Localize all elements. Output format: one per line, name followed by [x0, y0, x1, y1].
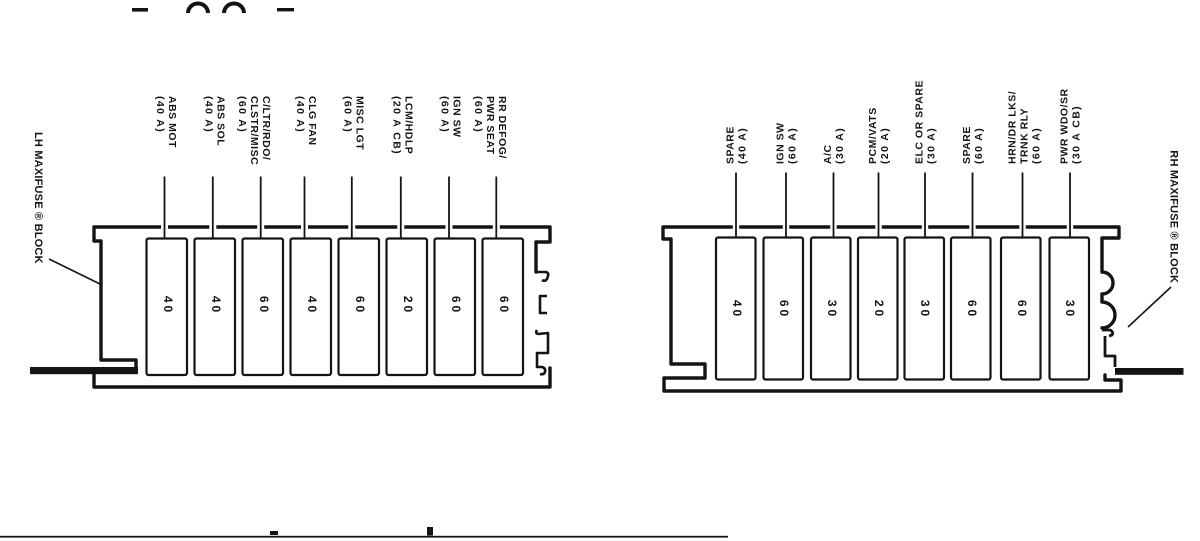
- svg-text:HRN/DR LKS/: HRN/DR LKS/: [1007, 91, 1019, 164]
- svg-text:40: 40: [305, 296, 319, 315]
- svg-text:(60 A): (60 A): [439, 96, 451, 133]
- svg-text:(60 A): (60 A): [341, 96, 353, 133]
- svg-text:(30 A CB): (30 A CB): [1071, 105, 1083, 164]
- svg-text:20: 20: [872, 300, 886, 319]
- svg-text:(40 A): (40 A): [154, 96, 166, 133]
- svg-text:SPARE: SPARE: [961, 126, 973, 164]
- svg-text:30: 30: [918, 300, 932, 319]
- svg-text:(30 A): (30 A): [926, 127, 938, 164]
- svg-text:40: 40: [730, 300, 744, 319]
- svg-text:30: 30: [825, 300, 839, 319]
- svg-text:20: 20: [401, 296, 415, 315]
- svg-text:RR DEFOG/: RR DEFOG/: [496, 96, 508, 159]
- svg-text:(40 A): (40 A): [294, 96, 306, 133]
- svg-text:60: 60: [449, 296, 463, 315]
- svg-text:SPARE: SPARE: [725, 126, 737, 164]
- svg-text:IGN SW: IGN SW: [775, 123, 787, 165]
- svg-text:ABS SOL: ABS SOL: [214, 96, 226, 146]
- svg-text:30: 30: [1063, 300, 1077, 319]
- svg-text:(40 A): (40 A): [202, 96, 214, 133]
- svg-text:60: 60: [965, 300, 979, 319]
- svg-text:PWR SEAT: PWR SEAT: [484, 96, 496, 155]
- svg-text:(60 A): (60 A): [1031, 127, 1043, 164]
- svg-text:(60 A): (60 A): [787, 127, 799, 164]
- svg-text:TRNK RLY: TRNK RLY: [1019, 108, 1031, 164]
- svg-text:MISC LGT: MISC LGT: [353, 96, 365, 150]
- svg-text:60: 60: [777, 300, 791, 319]
- svg-text:(60 A): (60 A): [236, 96, 248, 133]
- svg-text:(30 A): (30 A): [834, 127, 846, 164]
- svg-text:60: 60: [1015, 300, 1029, 319]
- svg-text:PWR WDO/SR: PWR WDO/SR: [1059, 88, 1071, 164]
- svg-text:LH MAXIFUSE ® BLOCK: LH MAXIFUSE ® BLOCK: [32, 132, 44, 264]
- svg-text:A/C: A/C: [822, 144, 834, 164]
- svg-text:ABS MOT: ABS MOT: [166, 96, 178, 148]
- svg-text:RH MAXIFUSE ® BLOCK: RH MAXIFUSE ® BLOCK: [1168, 150, 1180, 283]
- svg-text:40: 40: [161, 296, 175, 315]
- svg-text:CLG FAN: CLG FAN: [306, 96, 318, 146]
- svg-text:40: 40: [209, 296, 223, 315]
- svg-text:IGN SW: IGN SW: [451, 96, 463, 138]
- svg-text:(20 A): (20 A): [879, 127, 891, 164]
- svg-text:C/LTR/RDO/: C/LTR/RDO/: [260, 96, 272, 160]
- svg-text:60: 60: [257, 296, 271, 315]
- svg-text:PCM/VATS: PCM/VATS: [867, 107, 879, 164]
- svg-text:(60 A): (60 A): [973, 127, 985, 164]
- svg-text:60: 60: [497, 296, 511, 315]
- svg-text:(20 A CB): (20 A CB): [390, 96, 402, 155]
- svg-text:ELC OR SPARE: ELC OR SPARE: [914, 80, 926, 164]
- svg-text:60: 60: [353, 296, 367, 315]
- svg-text:CLSTR/MISC: CLSTR/MISC: [248, 96, 260, 165]
- svg-text:LCM/HDLP: LCM/HDLP: [402, 96, 414, 154]
- svg-text:(40 A): (40 A): [737, 127, 749, 164]
- svg-text:(60 A): (60 A): [472, 96, 484, 133]
